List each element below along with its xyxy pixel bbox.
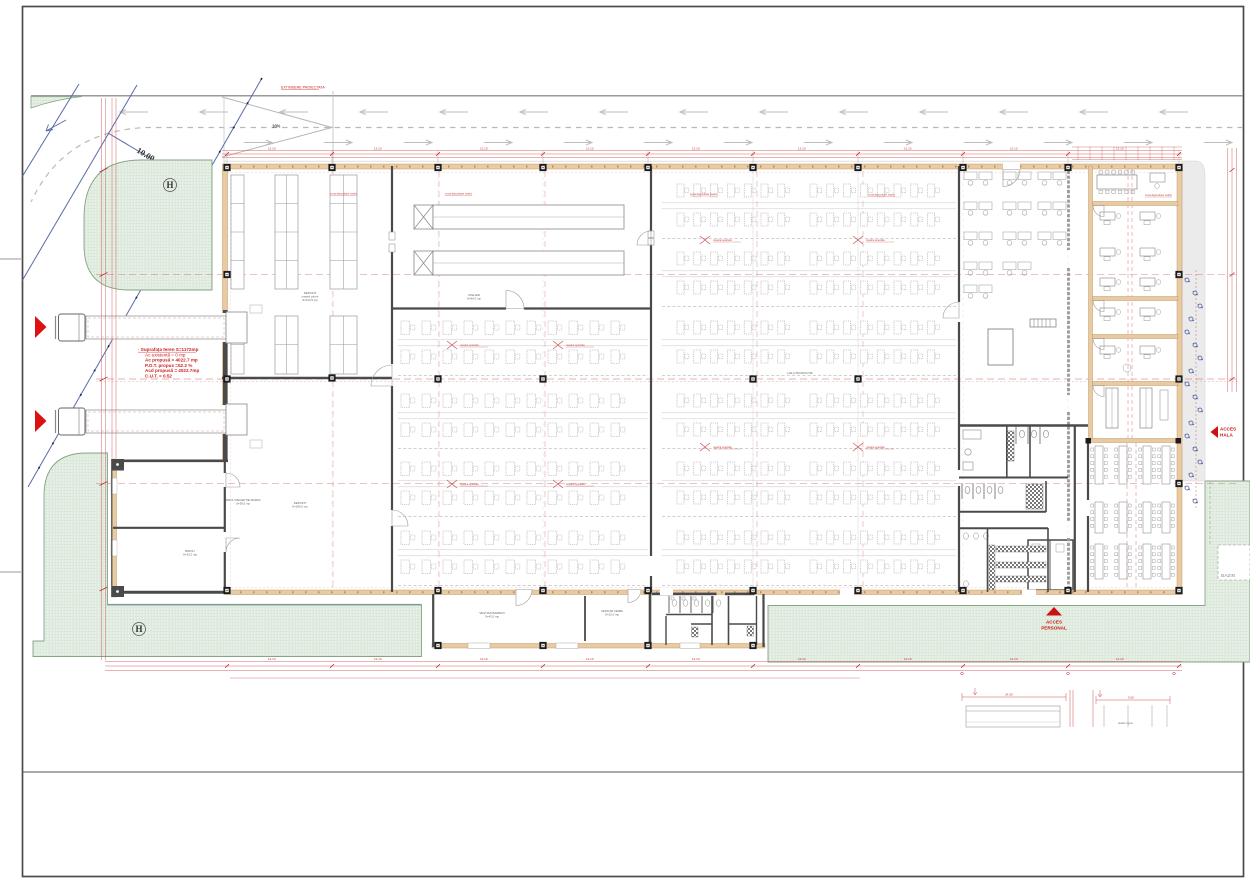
svg-text:masina speciala: masina speciala bbox=[460, 482, 479, 486]
svg-text:H: H bbox=[136, 624, 143, 634]
svg-text:12.10: 12.10 bbox=[692, 146, 700, 150]
svg-text:12.10: 12.10 bbox=[1116, 657, 1124, 661]
svg-text:12.10: 12.10 bbox=[480, 146, 488, 150]
svg-text:C.U.T. = 0.52: C.U.T. = 0.52 bbox=[145, 374, 172, 379]
svg-text:12.10: 12.10 bbox=[586, 657, 594, 661]
svg-text:masina speciala: masina speciala bbox=[566, 343, 585, 347]
svg-text:10%: 10% bbox=[272, 124, 281, 129]
svg-text:12.10: 12.10 bbox=[374, 657, 382, 661]
svg-text:zona depozitare marfa: zona depozitare marfa bbox=[330, 192, 357, 196]
svg-text:12.10: 12.10 bbox=[586, 146, 594, 150]
svg-text:S=42.0 mp: S=42.0 mp bbox=[485, 614, 499, 618]
svg-text:12.10: 12.10 bbox=[692, 657, 700, 661]
svg-text:S=96.0 mp: S=96.0 mp bbox=[467, 296, 481, 300]
svg-text:ACCES: ACCES bbox=[1220, 427, 1236, 432]
svg-text:zona depozitare marfa: zona depozitare marfa bbox=[445, 192, 472, 196]
svg-text:masina speciala: masina speciala bbox=[460, 343, 479, 347]
svg-text:detaliu rigola: detaliu rigola bbox=[1118, 721, 1133, 725]
svg-text:Ac existentă = 0 mp: Ac existentă = 0 mp bbox=[145, 352, 186, 357]
svg-text:HALA: HALA bbox=[1220, 433, 1233, 438]
svg-text:masina speciala: masina speciala bbox=[866, 238, 885, 242]
svg-text:ACCES: ACCES bbox=[1046, 620, 1062, 625]
svg-text:24.00: 24.00 bbox=[1005, 693, 1013, 697]
svg-text:S=412.5 mp: S=412.5 mp bbox=[302, 298, 318, 302]
svg-text:5.00: 5.00 bbox=[1128, 696, 1134, 700]
svg-text:zona depozitare marfa: zona depozitare marfa bbox=[868, 193, 895, 197]
svg-text:S=22.0 mp: S=22.0 mp bbox=[605, 612, 619, 616]
svg-text:12.10: 12.10 bbox=[480, 657, 488, 661]
svg-text:12.10: 12.10 bbox=[904, 657, 912, 661]
svg-text:zona depozitare marfa: zona depozitare marfa bbox=[1145, 193, 1172, 197]
svg-text:HALA PRODUCTIE: HALA PRODUCTIE bbox=[787, 371, 812, 375]
svg-text:S=180.0 mp: S=180.0 mp bbox=[292, 504, 308, 508]
svg-text:12.10: 12.10 bbox=[1010, 657, 1018, 661]
svg-text:zona depozitare marfa: zona depozitare marfa bbox=[690, 192, 717, 196]
svg-text:masina speciala: masina speciala bbox=[713, 238, 732, 242]
svg-text:12.10: 12.10 bbox=[798, 657, 806, 661]
svg-text:12.10: 12.10 bbox=[268, 146, 276, 150]
svg-text:12.10: 12.10 bbox=[798, 146, 806, 150]
svg-text:12.10: 12.10 bbox=[904, 146, 912, 150]
svg-text:masina speciala: masina speciala bbox=[566, 482, 585, 486]
svg-text:PERSONAL: PERSONAL bbox=[1041, 626, 1067, 631]
svg-text:H: H bbox=[167, 180, 174, 190]
svg-text:S=28.5 mp: S=28.5 mp bbox=[236, 501, 250, 505]
svg-text:Ac propusă = 4022.7 mp: Ac propusă = 4022.7 mp bbox=[145, 358, 198, 363]
svg-text:P.O.T. propus =52.2 %: P.O.T. propus =52.2 % bbox=[145, 363, 192, 368]
svg-text:Acd propusă = 4022.7mp: Acd propusă = 4022.7mp bbox=[145, 368, 199, 373]
svg-text:masina speciala: masina speciala bbox=[713, 445, 732, 449]
svg-text:12.10: 12.10 bbox=[1010, 146, 1018, 150]
svg-text:BAZIN: BAZIN bbox=[1221, 573, 1236, 579]
svg-text:12.10: 12.10 bbox=[374, 146, 382, 150]
svg-text:masina speciala: masina speciala bbox=[866, 445, 885, 449]
svg-text:EXTINDERE PROIECTATA: EXTINDERE PROIECTATA bbox=[281, 86, 325, 90]
svg-text:12.10: 12.10 bbox=[268, 657, 276, 661]
svg-text:S=15.2 mp: S=15.2 mp bbox=[183, 552, 197, 556]
